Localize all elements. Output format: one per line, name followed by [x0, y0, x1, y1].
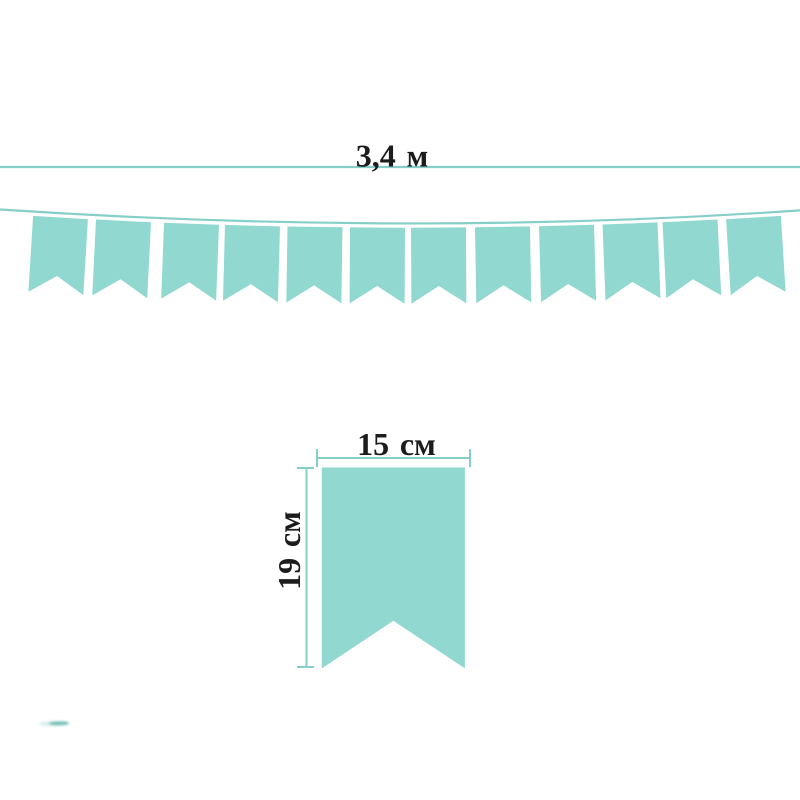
svg-text:15 см: 15 см: [357, 426, 436, 462]
svg-text:19 см: 19 см: [271, 511, 307, 590]
svg-text:3,4 м: 3,4 м: [356, 138, 428, 174]
